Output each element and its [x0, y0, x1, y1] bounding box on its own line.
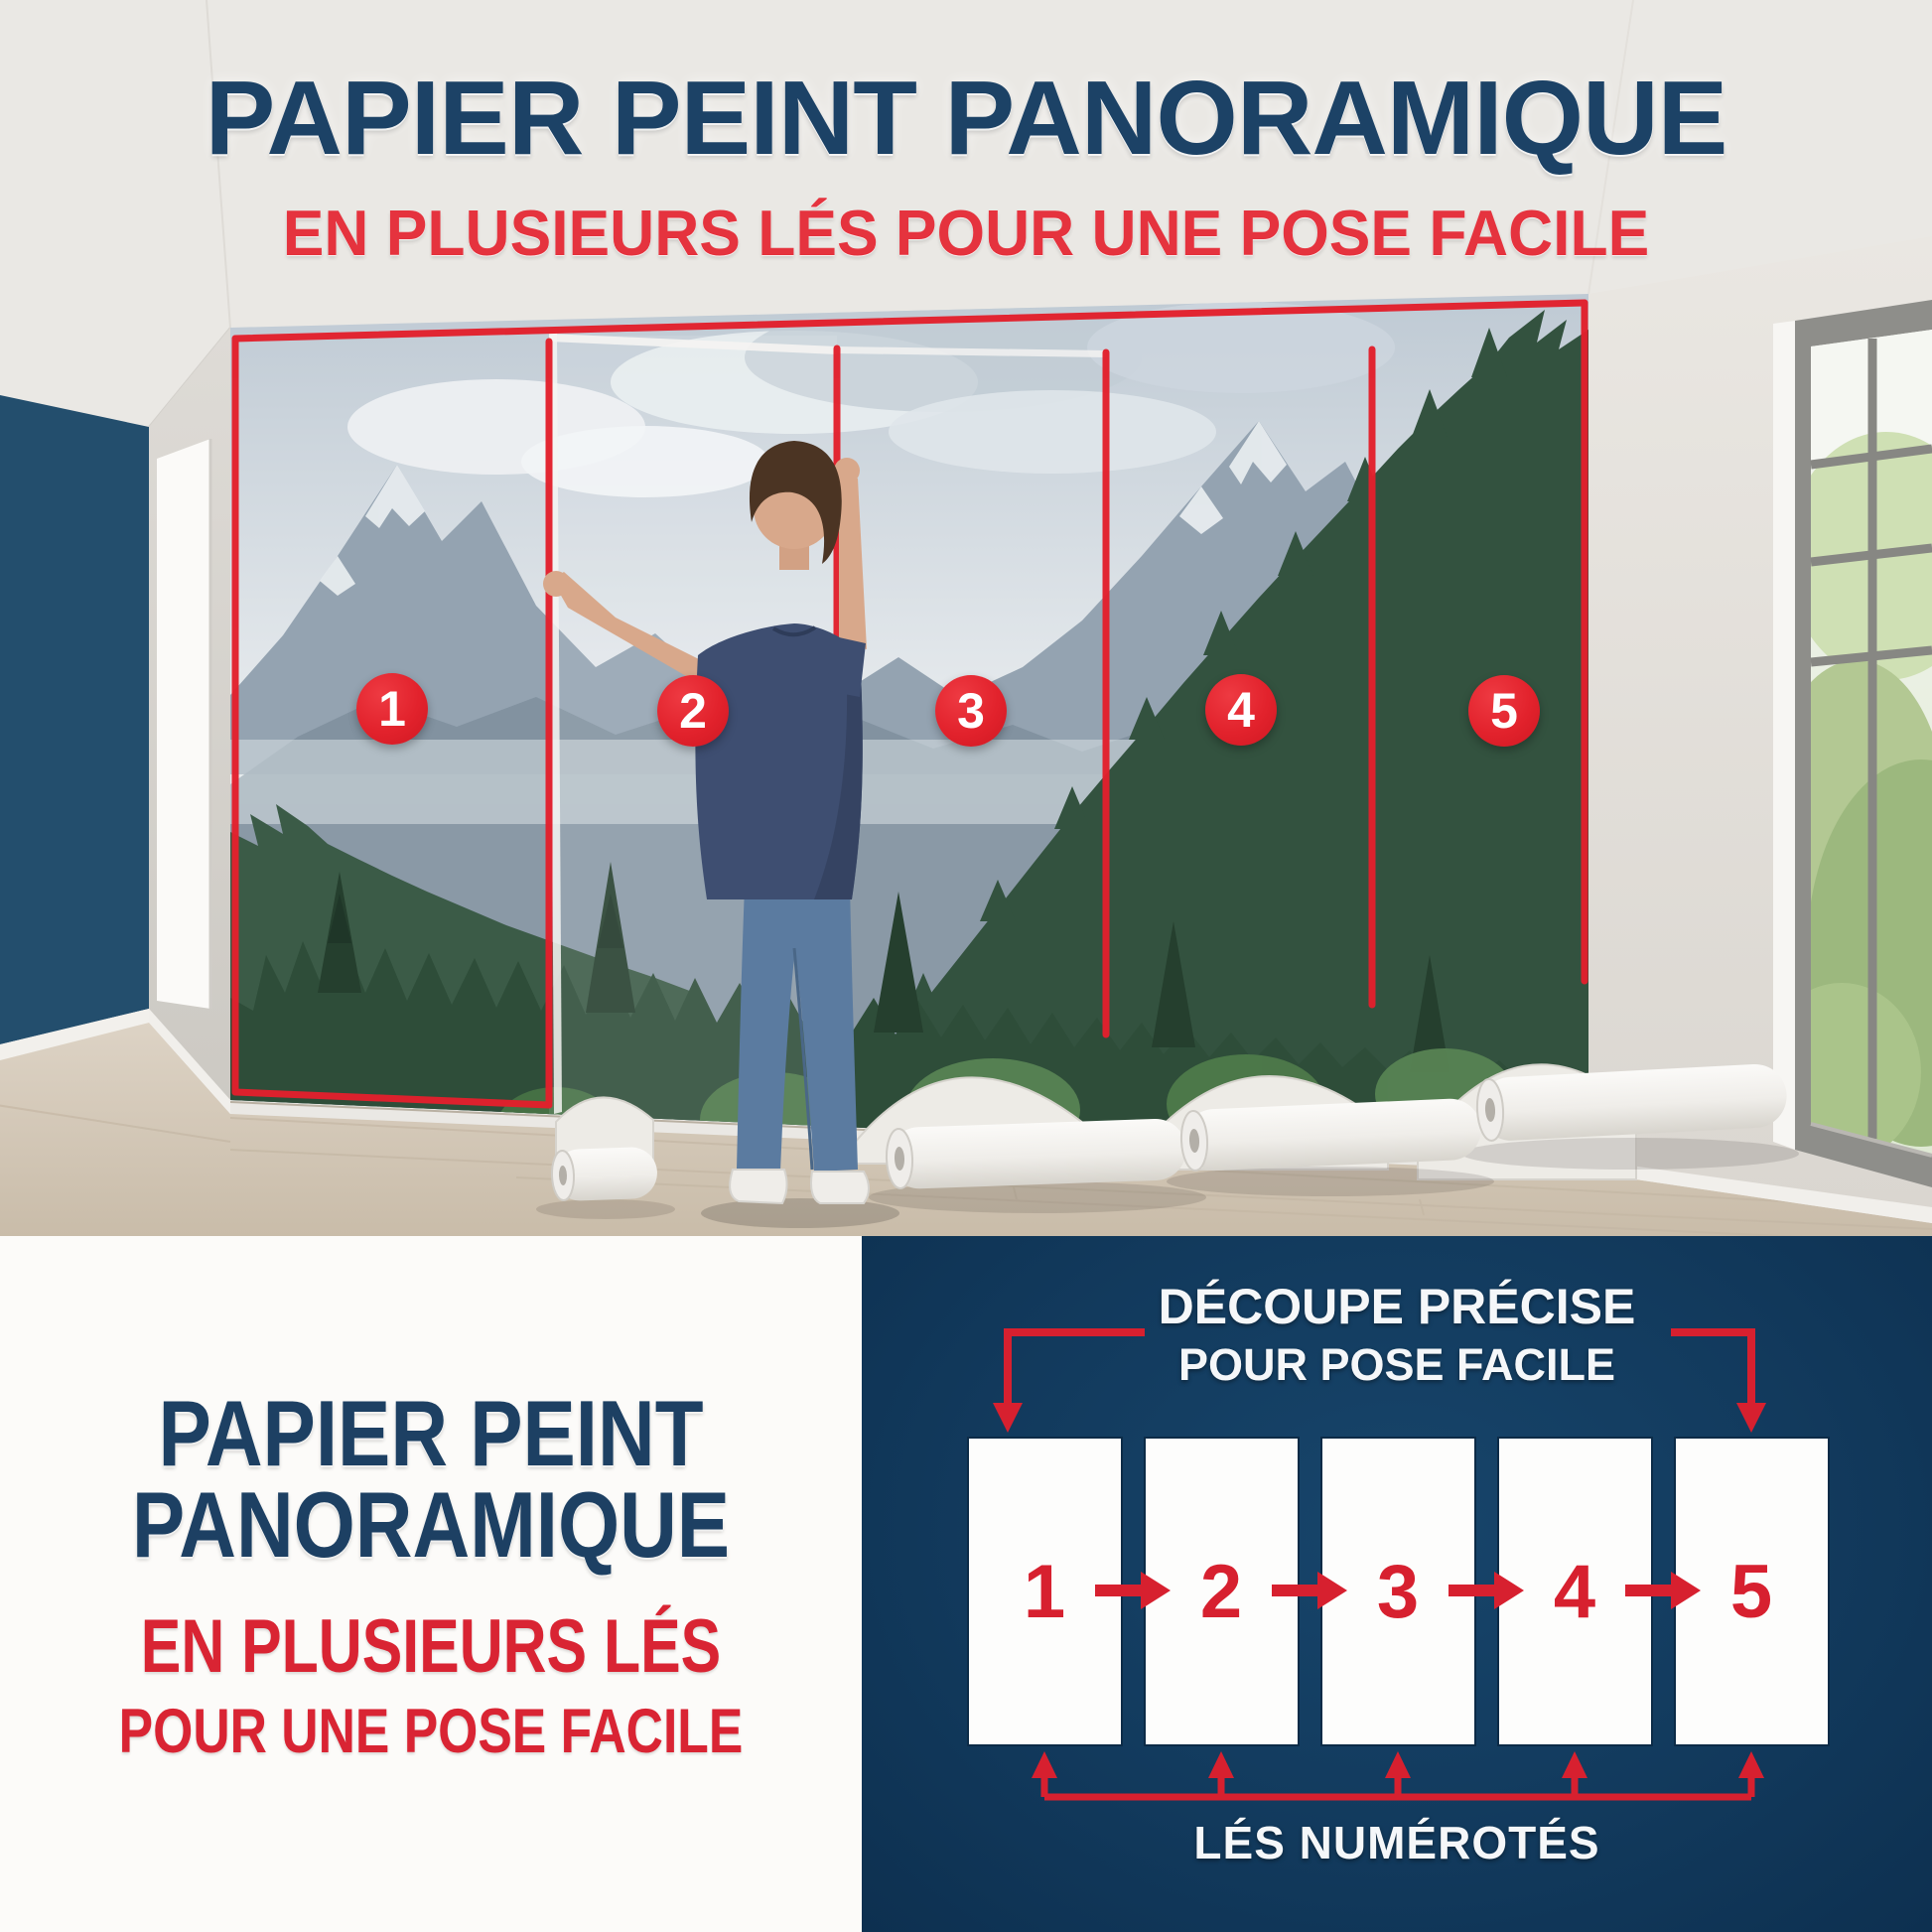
- man-shoe: [811, 1172, 869, 1203]
- arrowhead-down-icon: [1736, 1403, 1766, 1433]
- left-side-wall: [149, 328, 230, 1114]
- doorway: [157, 439, 210, 1009]
- text-card: PAPIER PEINT PANORAMIQUE EN PLUSIEURS LÉ…: [0, 1236, 862, 1932]
- man-shoe: [730, 1170, 786, 1203]
- wallpaper-strip-3-badge: 3: [935, 675, 1007, 747]
- wallpaper-strip-4-badge: 4: [1205, 674, 1277, 746]
- strip-number-2: 2: [1200, 1550, 1242, 1634]
- strip-number-4: 4: [1554, 1550, 1595, 1634]
- card-subtitle-line1: EN PLUSIEURS LÉS: [86, 1609, 775, 1685]
- hero-subtitle: EN PLUSIEURS LÉS POUR UNE POSE FACILE: [39, 201, 1893, 265]
- strip-number-3: 3: [1377, 1550, 1419, 1634]
- wallpaper-strip-1-badge: 1: [356, 673, 428, 745]
- card-title-line1: PAPIER PEINT: [65, 1387, 797, 1480]
- arrowhead-down-icon: [993, 1403, 1023, 1433]
- man-left-hand: [543, 571, 569, 597]
- strip-number-5: 5: [1730, 1550, 1772, 1634]
- numbered-bracket: [1044, 1776, 1751, 1797]
- diagram-graphics: 1 2 3 4 5: [862, 1236, 1932, 1932]
- roll: [1180, 1097, 1482, 1172]
- numbered-strips-diagram: DÉCOUPE PRÉCISE POUR POSE FACILE LÉS NUM…: [862, 1236, 1932, 1932]
- man-shadow: [701, 1198, 899, 1228]
- bracket-arrowheads: [1032, 1751, 1764, 1778]
- panoramic-mural: [230, 288, 1588, 1168]
- strip-number-1: 1: [1024, 1550, 1065, 1634]
- card-title-line2: PANORAMIQUE: [65, 1478, 797, 1572]
- card-subtitle-line2: POUR UNE POSE FACILE: [77, 1701, 784, 1763]
- cut-arrow-right: [1671, 1332, 1751, 1403]
- man-sleeve: [828, 635, 866, 697]
- wallpaper-strip-2-badge: 2: [657, 675, 729, 747]
- roll: [886, 1118, 1187, 1190]
- left-accent-wall: [0, 395, 149, 1060]
- small-roll: [551, 1147, 658, 1202]
- hero-title: PAPIER PEINT PANORAMIQUE: [0, 66, 1932, 171]
- wallpaper-infographic: 1 2 3 4 5 PAPIER PEINT PANORAMIQUE EN PL…: [0, 0, 1932, 1932]
- installation-photo-scene: [0, 0, 1932, 1236]
- window-recess: [1773, 321, 1795, 1150]
- cut-arrow-left: [1008, 1332, 1145, 1403]
- wallpaper-strip-5-badge: 5: [1468, 675, 1540, 747]
